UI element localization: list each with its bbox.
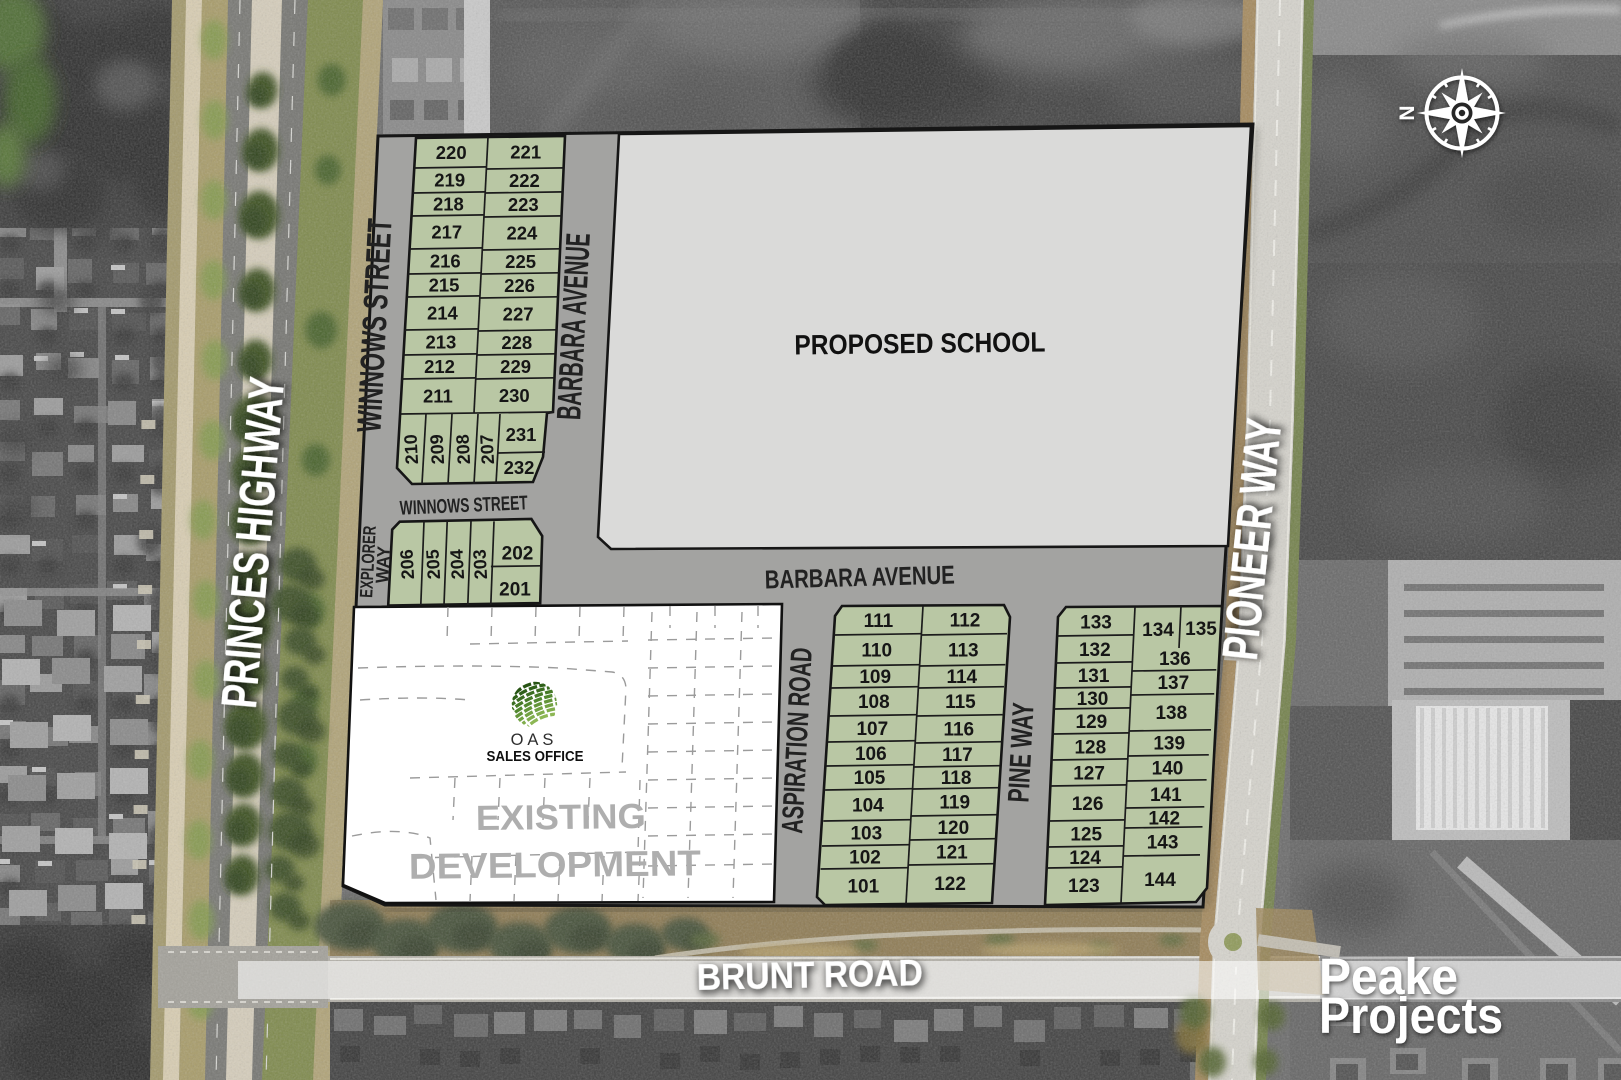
svg-text:121: 121 bbox=[936, 843, 968, 864]
svg-text:OAS: OAS bbox=[511, 731, 558, 749]
svg-text:WAY: WAY bbox=[372, 546, 394, 584]
svg-text:230: 230 bbox=[499, 385, 530, 406]
svg-text:211: 211 bbox=[423, 386, 453, 407]
svg-text:218: 218 bbox=[433, 194, 464, 215]
svg-text:232: 232 bbox=[504, 457, 535, 478]
svg-text:122: 122 bbox=[934, 874, 966, 895]
svg-text:110: 110 bbox=[861, 641, 892, 662]
svg-text:231: 231 bbox=[506, 424, 537, 445]
svg-text:125: 125 bbox=[1070, 824, 1102, 845]
svg-text:102: 102 bbox=[849, 848, 881, 869]
svg-text:123: 123 bbox=[1068, 876, 1100, 897]
svg-text:224: 224 bbox=[506, 223, 538, 244]
svg-text:112: 112 bbox=[950, 611, 981, 632]
svg-text:114: 114 bbox=[946, 667, 977, 688]
svg-text:208: 208 bbox=[453, 434, 475, 465]
svg-text:215: 215 bbox=[429, 275, 460, 296]
svg-text:N: N bbox=[1396, 105, 1419, 120]
svg-text:118: 118 bbox=[941, 768, 972, 789]
svg-text:213: 213 bbox=[425, 332, 456, 353]
svg-text:BRUNT ROAD: BRUNT ROAD bbox=[696, 952, 923, 998]
svg-text:115: 115 bbox=[945, 692, 976, 713]
svg-text:104: 104 bbox=[852, 796, 884, 817]
svg-text:207: 207 bbox=[477, 434, 499, 465]
svg-text:202: 202 bbox=[502, 544, 534, 565]
svg-text:144: 144 bbox=[1144, 870, 1176, 891]
svg-text:203: 203 bbox=[470, 549, 492, 580]
svg-text:127: 127 bbox=[1073, 763, 1105, 784]
svg-text:204: 204 bbox=[447, 549, 469, 580]
svg-text:137: 137 bbox=[1157, 673, 1189, 694]
svg-text:141: 141 bbox=[1150, 785, 1182, 806]
svg-text:109: 109 bbox=[859, 667, 891, 688]
svg-text:135: 135 bbox=[1185, 619, 1217, 640]
svg-text:BARBARA AVENUE: BARBARA AVENUE bbox=[764, 560, 955, 595]
svg-text:101: 101 bbox=[847, 877, 879, 898]
svg-text:223: 223 bbox=[508, 194, 539, 215]
svg-text:206: 206 bbox=[397, 549, 419, 580]
svg-text:209: 209 bbox=[427, 434, 449, 465]
svg-text:103: 103 bbox=[850, 824, 882, 845]
svg-text:120: 120 bbox=[937, 818, 969, 839]
svg-text:131: 131 bbox=[1078, 666, 1110, 687]
svg-text:EXISTING: EXISTING bbox=[476, 797, 646, 838]
svg-text:217: 217 bbox=[431, 222, 462, 243]
svg-text:124: 124 bbox=[1069, 848, 1101, 869]
svg-text:212: 212 bbox=[424, 356, 455, 377]
svg-text:133: 133 bbox=[1080, 612, 1112, 633]
svg-text:229: 229 bbox=[500, 356, 531, 377]
svg-text:219: 219 bbox=[434, 170, 465, 191]
svg-text:143: 143 bbox=[1147, 832, 1179, 853]
svg-text:130: 130 bbox=[1077, 689, 1109, 710]
svg-text:227: 227 bbox=[503, 304, 534, 325]
svg-text:111: 111 bbox=[864, 611, 894, 632]
svg-text:119: 119 bbox=[939, 793, 970, 814]
svg-text:Projects: Projects bbox=[1319, 987, 1503, 1044]
svg-text:142: 142 bbox=[1148, 808, 1180, 829]
svg-text:226: 226 bbox=[504, 275, 535, 296]
svg-text:205: 205 bbox=[423, 549, 445, 580]
svg-text:220: 220 bbox=[436, 142, 467, 163]
svg-text:221: 221 bbox=[510, 142, 541, 163]
svg-text:214: 214 bbox=[427, 303, 459, 324]
svg-text:129: 129 bbox=[1076, 712, 1108, 733]
svg-text:116: 116 bbox=[943, 720, 974, 741]
svg-text:128: 128 bbox=[1074, 737, 1106, 758]
svg-text:201: 201 bbox=[499, 580, 531, 601]
svg-text:225: 225 bbox=[505, 251, 536, 272]
svg-text:108: 108 bbox=[858, 692, 890, 713]
svg-text:SALES OFFICE: SALES OFFICE bbox=[487, 749, 584, 765]
svg-text:216: 216 bbox=[430, 251, 461, 272]
svg-text:105: 105 bbox=[854, 768, 886, 789]
svg-text:228: 228 bbox=[501, 332, 532, 353]
svg-text:138: 138 bbox=[1155, 703, 1187, 724]
svg-text:117: 117 bbox=[942, 745, 973, 766]
svg-text:222: 222 bbox=[509, 170, 540, 191]
svg-text:210: 210 bbox=[401, 434, 423, 465]
svg-text:PINE WAY: PINE WAY bbox=[1002, 702, 1040, 804]
svg-text:140: 140 bbox=[1152, 759, 1184, 780]
svg-text:DEVELOPMENT: DEVELOPMENT bbox=[409, 842, 701, 887]
svg-text:PROPOSED SCHOOL: PROPOSED SCHOOL bbox=[794, 326, 1045, 360]
svg-text:106: 106 bbox=[855, 744, 887, 765]
svg-text:126: 126 bbox=[1072, 794, 1104, 815]
svg-text:132: 132 bbox=[1079, 640, 1111, 661]
svg-text:113: 113 bbox=[948, 641, 979, 662]
svg-text:107: 107 bbox=[856, 719, 888, 740]
svg-text:136: 136 bbox=[1159, 649, 1191, 670]
svg-text:139: 139 bbox=[1153, 734, 1185, 755]
svg-text:134: 134 bbox=[1142, 620, 1174, 641]
